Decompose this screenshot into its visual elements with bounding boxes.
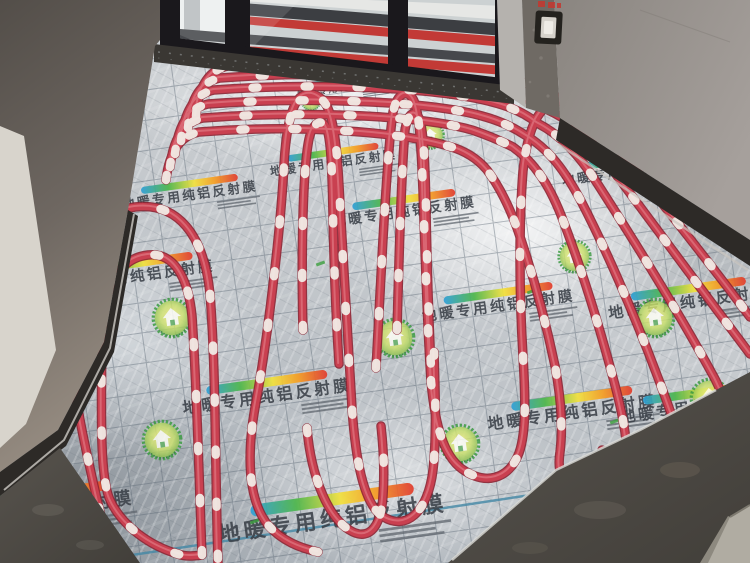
window bbox=[154, 0, 514, 104]
left-wall bbox=[0, 0, 160, 563]
light-switch bbox=[534, 10, 563, 44]
right-wall bbox=[497, 0, 750, 270]
concrete-area-bottom-right bbox=[448, 372, 750, 563]
switch-rocker bbox=[544, 21, 554, 34]
room-photo: 地暖专用纯铝反射膜地暖专用纯铝反射膜地暖专用纯铝反射膜地暖专用纯铝反射膜地暖专用… bbox=[0, 0, 750, 563]
room-structure bbox=[0, 0, 750, 563]
